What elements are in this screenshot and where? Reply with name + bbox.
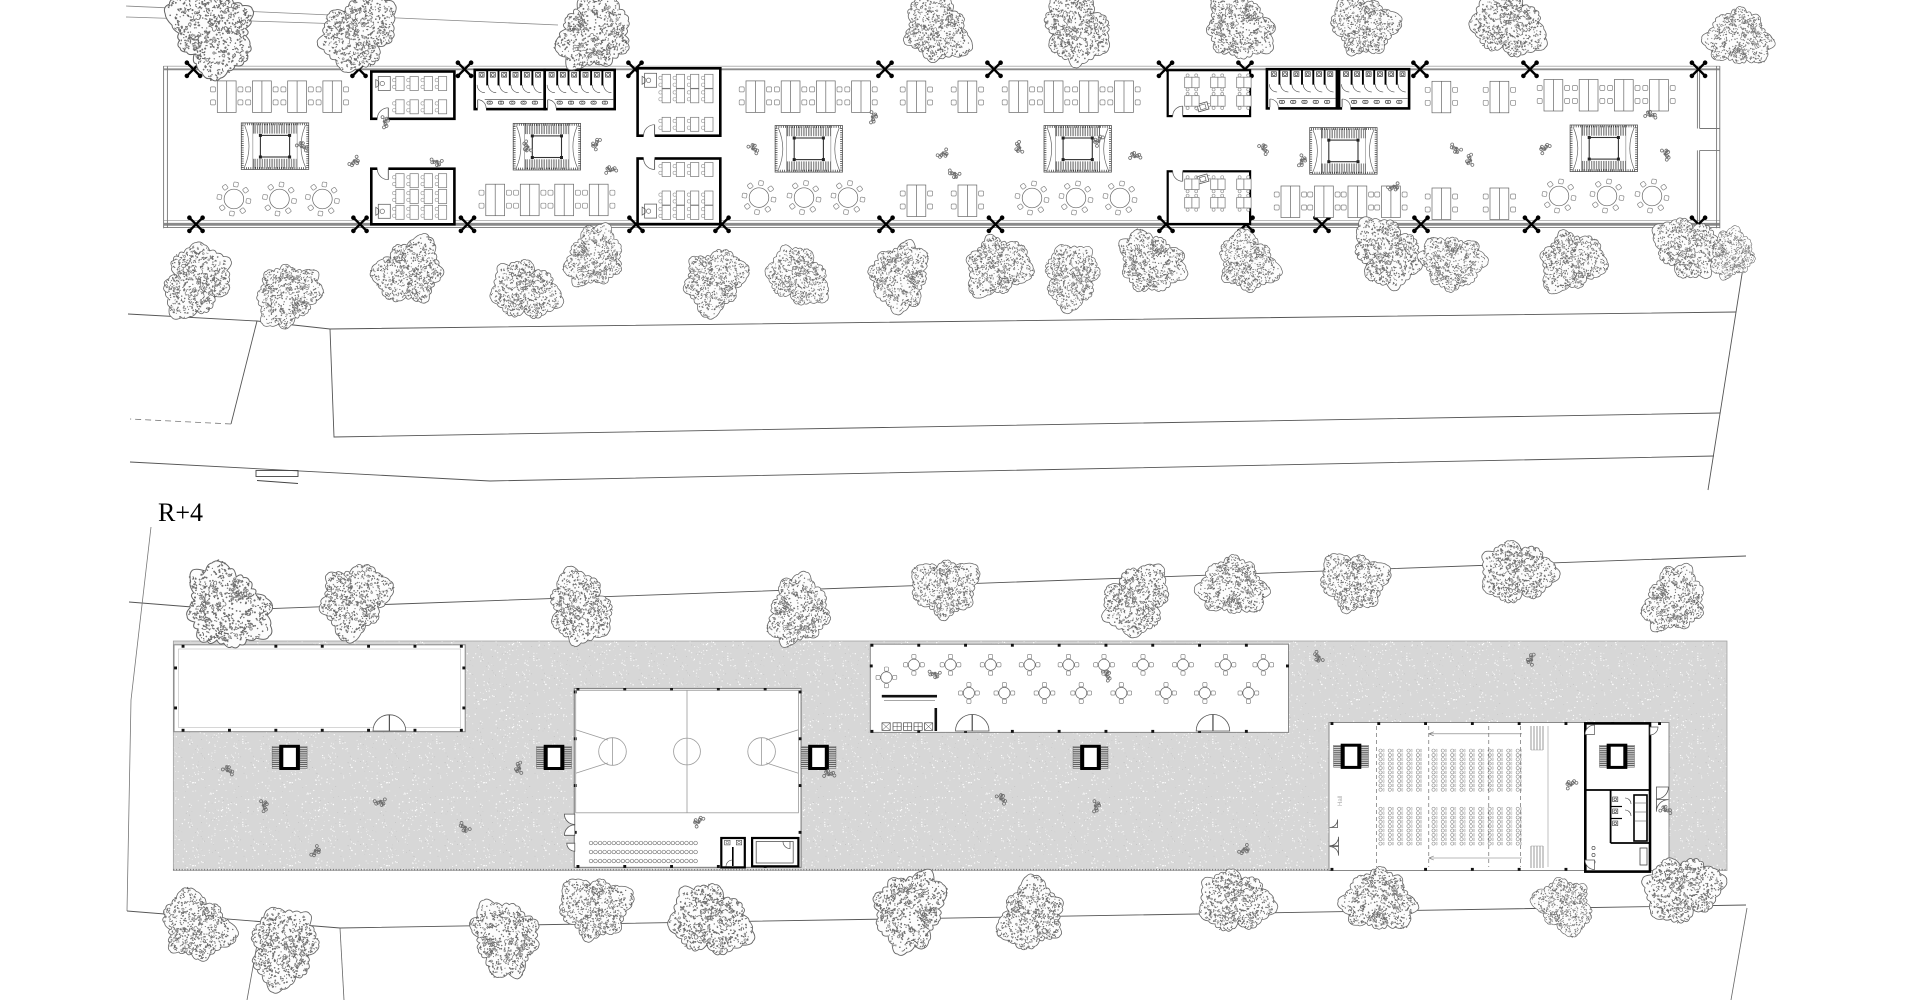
svg-text:R+4: R+4 [158,498,203,527]
svg-text:Hall: Hall [1338,796,1344,806]
